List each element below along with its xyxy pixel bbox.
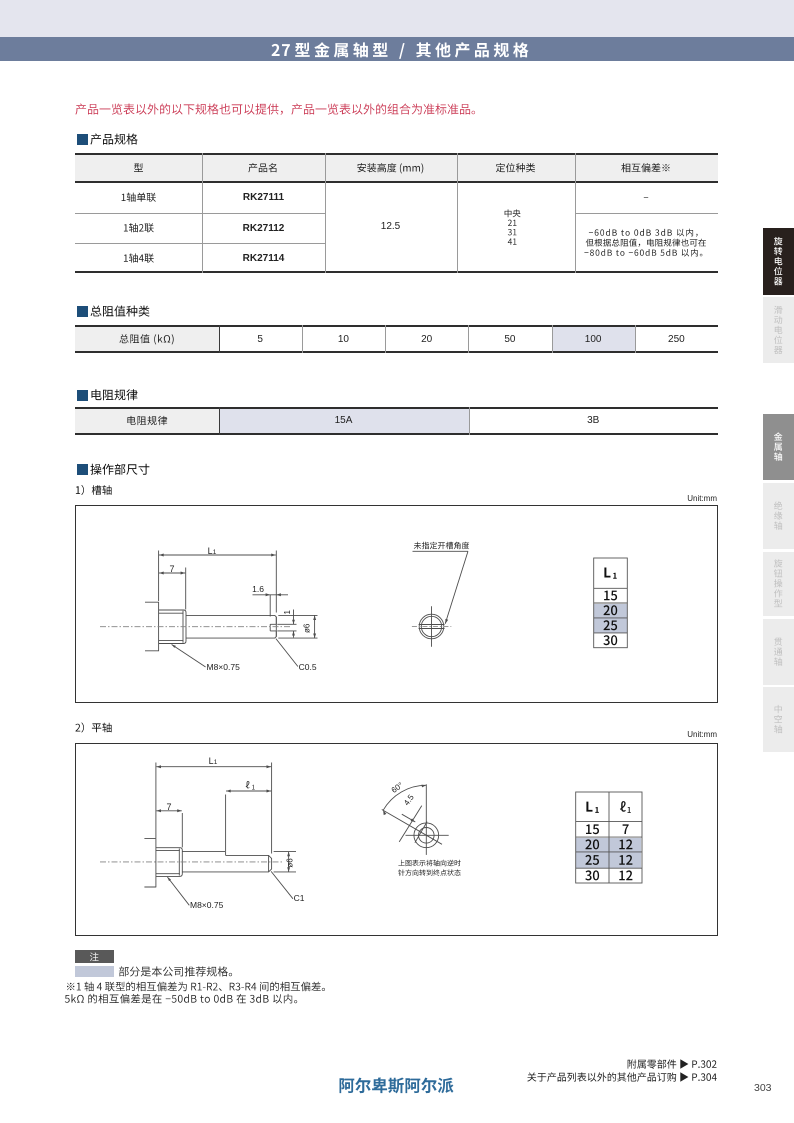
svg-text:4.5: 4.5	[402, 792, 416, 807]
svg-text:1: 1	[283, 610, 292, 615]
svg-text:60°: 60°	[390, 781, 405, 795]
svg-text:ø6: ø6	[285, 858, 294, 868]
svg-text:ø6: ø6	[302, 623, 311, 633]
